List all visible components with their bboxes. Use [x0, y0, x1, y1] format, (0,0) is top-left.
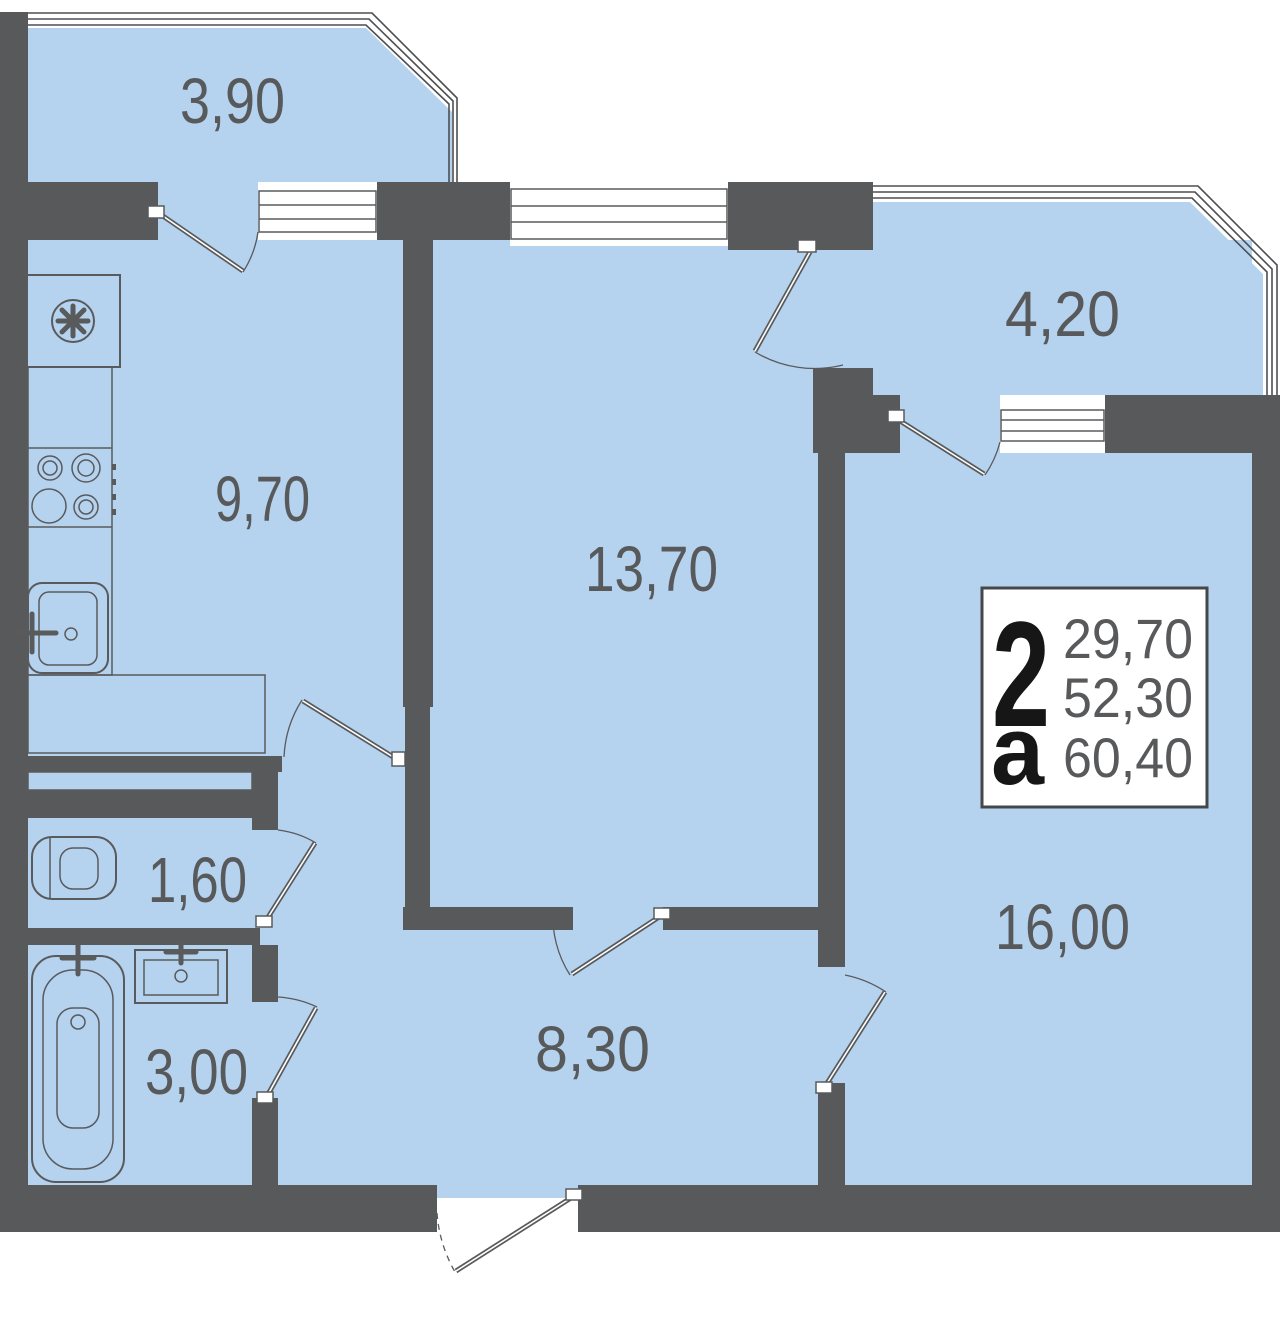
wall-bathroom-pier-top	[252, 945, 278, 1002]
apartment-info-badge: 2 а 29,70 52,30 60,40	[982, 588, 1207, 807]
badge-apartment-area: 52,30	[1063, 666, 1193, 729]
wall-balcony-divider-left	[28, 182, 158, 240]
door-hinge	[798, 240, 816, 252]
fan-icon	[52, 300, 94, 342]
door-hinge	[888, 410, 904, 422]
door-hinge	[654, 908, 670, 919]
floor-plan-page: 3,90 9,70 13,70 4,20 16,00 8,30 1,60 3,0…	[0, 0, 1280, 1318]
hallway-area-label: 8,30	[535, 1013, 650, 1085]
wall-balcony-divider-right	[377, 182, 510, 240]
door-hinge	[816, 1082, 832, 1093]
wall-livingroom-hall-right	[663, 907, 845, 930]
wall-kitchen-hall	[405, 700, 430, 930]
wall-shaft-bottom	[28, 790, 252, 818]
wall-bottom-left	[0, 1185, 437, 1232]
bedroom-window-band	[1000, 395, 1105, 453]
door-hinge	[566, 1189, 582, 1200]
wall-bedroom-left-lower	[818, 1083, 845, 1185]
bathroom-area-label: 3,00	[145, 1036, 248, 1108]
wall-bedroom-balcony-right	[1105, 395, 1280, 453]
floor-plan: 3,90 9,70 13,70 4,20 16,00 8,30 1,60 3,0…	[0, 0, 1280, 1318]
door-hinge	[392, 752, 405, 766]
bedroom-area-label: 16,00	[995, 891, 1130, 963]
balcony-right-area-label: 4,20	[1005, 278, 1120, 350]
wall-kitchen-livingroom	[403, 240, 433, 707]
wc-area-label: 1,60	[148, 844, 247, 916]
wall-right	[1252, 445, 1280, 1232]
wall-wc-pier-top	[252, 770, 278, 830]
entrance-threshold	[437, 1185, 578, 1198]
door-hinge	[257, 1092, 273, 1103]
wall-bathroom-pier-bottom	[252, 1098, 278, 1185]
balcony-left-doorway-floor	[158, 182, 258, 242]
wall-livingroom-hall-left	[403, 907, 573, 930]
kitchen-area-label: 9,70	[215, 463, 310, 535]
ventilation-shaft	[28, 772, 252, 790]
badge-type-letter: а	[991, 696, 1045, 805]
wall-bottom-right	[578, 1185, 1280, 1232]
wall-bedroom-balcony-left	[845, 395, 900, 453]
wall-bedroom-left	[818, 443, 845, 967]
balcony-left-area-label: 3,90	[180, 65, 285, 137]
door-hinge	[256, 916, 272, 927]
wall-wc-bathroom-divider	[28, 928, 260, 945]
living-room-window-band	[510, 182, 728, 246]
badge-total-area: 60,40	[1063, 726, 1193, 789]
living-room-area-label: 13,70	[585, 533, 718, 605]
door-hinge	[148, 206, 164, 218]
wall-kitchen-bottom	[28, 756, 282, 772]
badge-living-area: 29,70	[1063, 607, 1193, 670]
